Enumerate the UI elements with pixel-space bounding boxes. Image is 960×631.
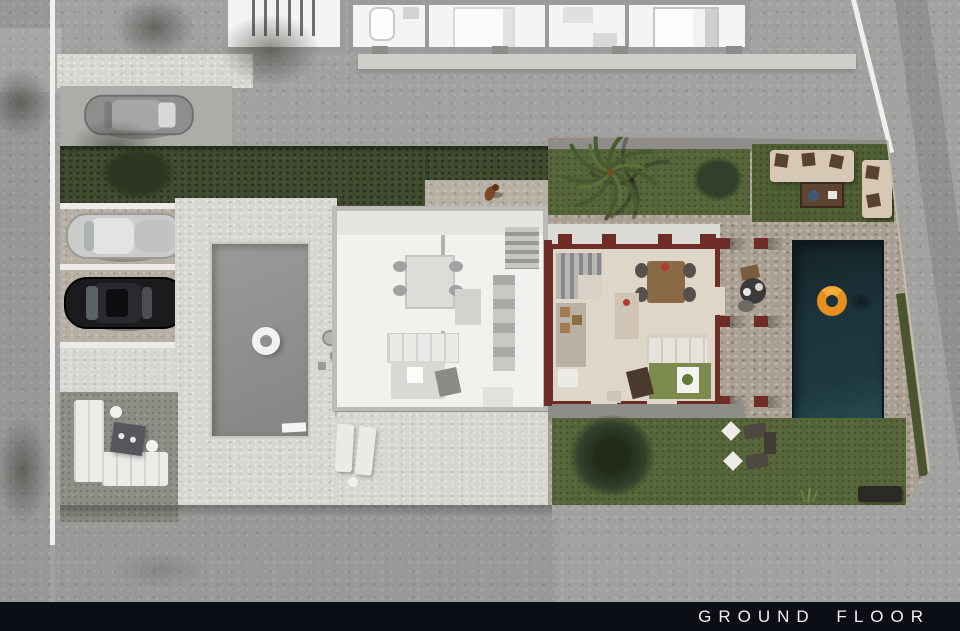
gray-pouf-1: [110, 406, 122, 418]
pergola-pillar-2: [754, 238, 768, 249]
white-lounger-1: [335, 424, 354, 473]
tree-shadow-2: [200, 0, 340, 100]
staircase: [556, 253, 602, 299]
fridge: [558, 369, 578, 387]
black-car: [62, 271, 188, 335]
left-armchair: [435, 367, 462, 397]
left-bistro-stool: [318, 362, 326, 370]
neighbor-bed-2: [653, 7, 719, 52]
kitchen-counter: [556, 303, 586, 367]
neighbor-terrace: [358, 54, 856, 69]
lounger-side-table: [348, 477, 358, 487]
left-staircase: [505, 227, 539, 269]
table-papers: [828, 191, 837, 199]
pillar-shadow-6: [768, 396, 786, 408]
living-rug: [649, 363, 711, 399]
kitchen-island: [615, 293, 639, 339]
neighbor-wall-a: [425, 5, 429, 52]
door-gap-right: [715, 287, 725, 315]
neighbor-house: [348, 0, 750, 52]
left-chair-1: [393, 261, 407, 272]
pool-ring-float: [817, 286, 847, 316]
lounge-sofa-horizontal: [770, 150, 854, 182]
dining-chair-3: [683, 263, 696, 278]
curb-left: [50, 0, 55, 545]
left-entry-step: [483, 387, 513, 407]
gray-sofa-horizontal: [102, 452, 168, 486]
shared-party-wall: [544, 240, 552, 406]
flower-vase: [661, 263, 669, 271]
table-blue-bowl: [808, 190, 819, 201]
gray-sofa-vertical: [74, 400, 104, 482]
gray-pouf-2: [146, 440, 158, 452]
pillar-shadow-2: [768, 238, 786, 250]
terrace-chair: [738, 300, 754, 312]
right-house: [548, 244, 720, 406]
left-dining-table: [405, 255, 455, 309]
parking-strip-2: [60, 264, 192, 270]
rug-art: [677, 367, 699, 393]
left-rug-art: [407, 367, 423, 383]
left-sofa: [387, 333, 459, 363]
pergola-pillar-4: [754, 316, 768, 327]
lounge-coffee-table: [800, 182, 844, 208]
dining-chair-1: [635, 263, 648, 278]
pergola-pillar-3: [716, 316, 730, 327]
left-chair-3: [449, 261, 463, 272]
dog: [483, 184, 505, 206]
dining-chair-4: [683, 287, 696, 302]
bbq-bench: [858, 486, 902, 502]
pillar-shadow-3: [730, 316, 748, 328]
floor-label: GROUND FLOOR: [698, 607, 930, 627]
dining-table: [647, 261, 685, 303]
pergola-pillar-1: [716, 238, 730, 249]
driveway-south-paving: [60, 348, 192, 396]
right-unit: [548, 136, 948, 505]
bed-pillow: [503, 9, 513, 47]
silver-car: [64, 209, 186, 264]
pool: [792, 240, 884, 434]
hedge-right-strip: [425, 146, 552, 180]
left-desk: [455, 289, 481, 325]
float-shadow: [844, 288, 878, 316]
neighbor-wall-c: [625, 5, 629, 52]
left-kitchen-counter: [493, 275, 515, 371]
street-bottom-tint: [55, 520, 555, 602]
bed-pillow-2: [705, 9, 717, 47]
neighbor-wall-b: [545, 5, 549, 52]
property-bottom-shadow: [60, 505, 552, 521]
left-pool-ring-float: [252, 327, 280, 355]
lounge-sofa-vertical: [862, 160, 892, 218]
neighbor-bathtub: [369, 7, 395, 41]
left-chair-2: [393, 285, 407, 296]
living-sofa: [647, 333, 707, 363]
hedge-tree: [88, 138, 188, 208]
title-bar: GROUND FLOOR: [0, 602, 960, 631]
palm-tree: [554, 124, 670, 236]
left-house: [332, 206, 548, 412]
garden-mat: [764, 432, 776, 454]
left-pool-towel: [282, 422, 306, 432]
bed-duvet: [655, 9, 693, 47]
bush: [686, 151, 750, 207]
pillar-shadow-4: [768, 316, 786, 328]
neighbor-shower: [563, 7, 593, 23]
gray-coffee-table: [110, 422, 146, 456]
site-plan-render: GROUND FLOOR: [0, 0, 960, 631]
pillar-shadow-1: [730, 238, 748, 250]
pergola-pillar-6: [754, 396, 768, 407]
neighbor-fixture-2: [593, 33, 617, 47]
right-house-roofband: [548, 224, 720, 246]
neighbor-fixture: [403, 7, 419, 19]
